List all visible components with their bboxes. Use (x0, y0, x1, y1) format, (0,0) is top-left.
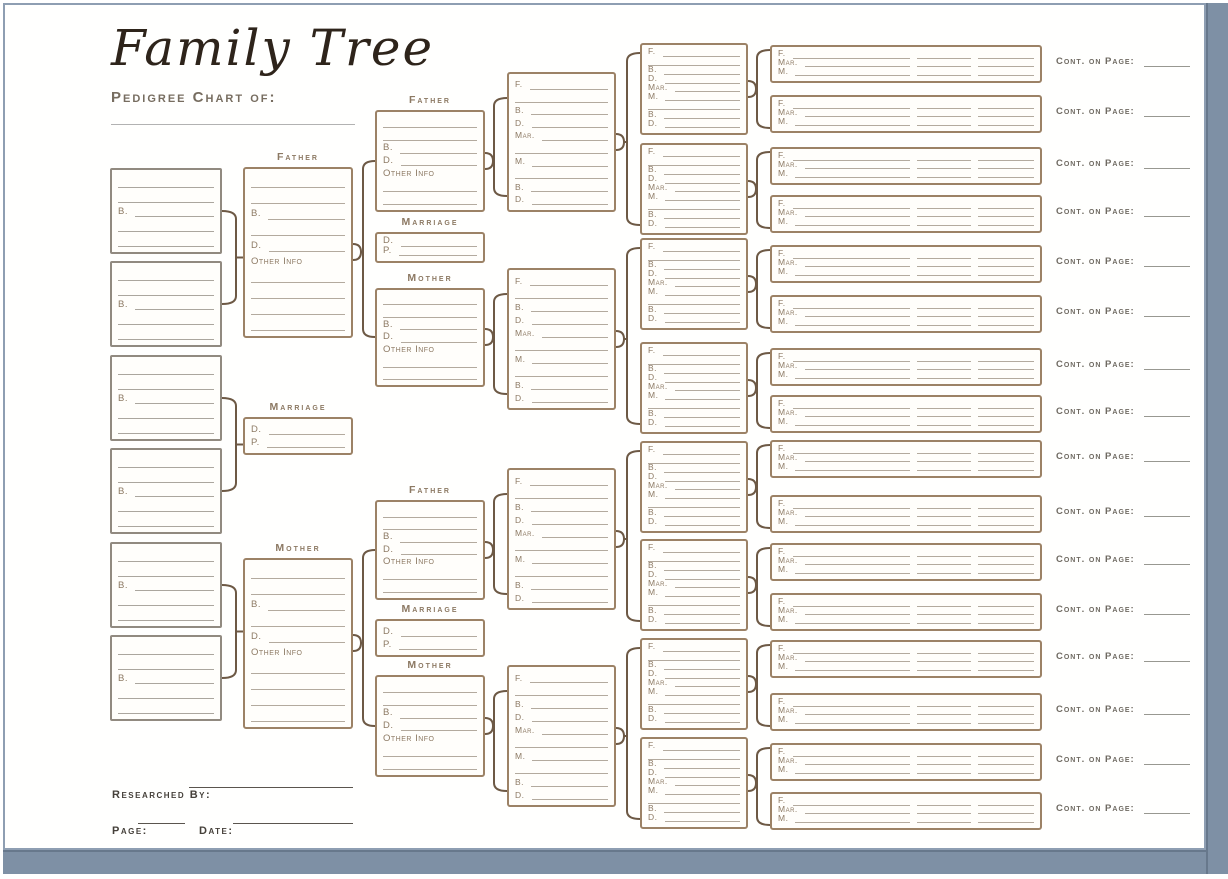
field-input-line[interactable] (793, 748, 910, 757)
field-input-line[interactable] (542, 525, 608, 538)
field-input-line-segment[interactable] (978, 615, 1034, 624)
field-input-line[interactable] (795, 662, 910, 671)
field-input-line[interactable] (793, 445, 910, 454)
field-input-line[interactable] (805, 109, 910, 118)
field-input-line-segment[interactable] (917, 445, 971, 454)
field-input-line[interactable] (251, 579, 345, 595)
field-input-line-segment[interactable] (978, 715, 1034, 724)
field-input-line[interactable] (793, 250, 910, 259)
field-input-line[interactable] (793, 797, 910, 806)
field-input-line[interactable] (118, 512, 214, 527)
field-input-line-segment[interactable] (978, 517, 1034, 526)
field-input-line[interactable] (805, 409, 910, 418)
field-input-line[interactable] (532, 154, 608, 167)
cont-on-page-input-line[interactable] (1144, 453, 1190, 462)
field-input-line[interactable] (383, 568, 477, 581)
field-input-line[interactable] (400, 706, 477, 719)
field-input-line[interactable] (383, 680, 477, 693)
field-input-line[interactable] (663, 243, 740, 252)
field-input-line-segment[interactable] (978, 370, 1034, 379)
cont-on-page-input-line[interactable] (1144, 756, 1190, 765)
field-input-line[interactable] (118, 325, 214, 340)
field-input-line[interactable] (665, 813, 741, 822)
field-input-line[interactable] (665, 670, 741, 679)
field-input-line-segment[interactable] (917, 50, 971, 59)
cont-on-page-input-line[interactable] (1144, 361, 1190, 370)
field-input-line[interactable] (648, 751, 740, 760)
field-input-line[interactable] (805, 59, 910, 68)
field-input-line-segment[interactable] (978, 59, 1034, 68)
field-input-line[interactable] (269, 422, 346, 435)
field-input-line[interactable] (118, 699, 214, 714)
field-input-line-segment[interactable] (917, 797, 971, 806)
field-input-line[interactable] (665, 588, 740, 597)
field-input-line[interactable] (664, 508, 740, 517)
field-input-line[interactable] (135, 203, 214, 218)
field-input-line-segment[interactable] (978, 748, 1034, 757)
field-input-line-segment[interactable] (917, 317, 971, 326)
field-input-line[interactable] (118, 217, 214, 232)
field-input-line-segment[interactable] (917, 814, 971, 823)
field-input-line[interactable] (531, 774, 608, 787)
field-input-line-segment[interactable] (917, 557, 971, 566)
field-input-line-segment[interactable] (917, 715, 971, 724)
field-input-line-segment[interactable] (917, 250, 971, 259)
field-input-line[interactable] (648, 795, 740, 804)
field-input-line-segment[interactable] (978, 117, 1034, 126)
field-input-line-segment[interactable] (978, 814, 1034, 823)
field-input-line[interactable] (665, 473, 741, 482)
field-input-line-segment[interactable] (917, 565, 971, 574)
field-input-line[interactable] (664, 66, 740, 75)
field-input-line[interactable] (664, 464, 740, 473)
field-input-line[interactable] (805, 806, 910, 815)
field-input-line[interactable] (795, 517, 910, 526)
field-input-line[interactable] (118, 281, 214, 296)
field-input-line[interactable] (664, 804, 740, 813)
field-input-line[interactable] (399, 247, 477, 257)
field-input-line[interactable] (532, 390, 609, 403)
field-input-line-segment[interactable] (978, 598, 1034, 607)
field-input-line-segment[interactable] (978, 548, 1034, 557)
field-input-line[interactable] (532, 590, 609, 603)
field-input-line-segment[interactable] (917, 259, 971, 268)
field-input-line[interactable] (664, 661, 740, 670)
field-input-line[interactable] (515, 683, 608, 696)
field-input-line[interactable] (648, 597, 740, 606)
field-input-line[interactable] (665, 192, 740, 201)
field-input-line[interactable] (118, 606, 214, 621)
field-input-line[interactable] (648, 201, 740, 210)
field-input-line-segment[interactable] (917, 109, 971, 118)
field-input-line-segment[interactable] (917, 370, 971, 379)
field-input-line[interactable] (532, 512, 609, 525)
field-input-line[interactable] (648, 101, 740, 110)
field-input-line[interactable] (795, 565, 910, 574)
field-input-line[interactable] (805, 309, 910, 318)
field-input-line[interactable] (531, 499, 608, 512)
field-input-line-segment[interactable] (917, 209, 971, 218)
field-input-line[interactable] (648, 553, 740, 562)
field-input-line-segment[interactable] (978, 645, 1034, 654)
field-input-line[interactable] (795, 370, 910, 379)
field-input-line[interactable] (251, 267, 345, 283)
field-input-line[interactable] (663, 446, 740, 455)
field-input-line[interactable] (135, 483, 214, 498)
field-input-line[interactable] (515, 735, 608, 748)
field-input-line[interactable] (805, 509, 910, 518)
field-input-line[interactable] (542, 128, 608, 141)
field-input-line[interactable] (515, 538, 608, 551)
field-input-line[interactable] (135, 296, 214, 311)
field-input-line-segment[interactable] (978, 797, 1034, 806)
field-input-line[interactable] (805, 607, 910, 616)
field-input-line[interactable] (251, 172, 345, 188)
field-input-line[interactable] (383, 355, 477, 367)
field-input-line[interactable] (542, 722, 608, 735)
field-input-line-segment[interactable] (978, 161, 1034, 170)
field-input-line[interactable] (383, 368, 477, 380)
field-input-line-segment[interactable] (917, 67, 971, 76)
field-input-line[interactable] (648, 157, 740, 166)
field-input-line-segment[interactable] (917, 748, 971, 757)
field-input-line-segment[interactable] (978, 362, 1034, 371)
field-input-line-segment[interactable] (917, 100, 971, 109)
field-input-line[interactable] (648, 57, 740, 66)
cont-on-page-input-line[interactable] (1144, 208, 1190, 217)
field-input-line[interactable] (532, 351, 608, 364)
field-input-line[interactable] (793, 152, 910, 161)
field-input-line-segment[interactable] (917, 707, 971, 716)
field-input-line[interactable] (664, 110, 740, 119)
field-input-line[interactable] (675, 482, 740, 491)
field-input-line[interactable] (665, 687, 740, 696)
field-input-line[interactable] (805, 557, 910, 566)
cont-on-page-input-line[interactable] (1144, 58, 1190, 67)
field-input-line[interactable] (118, 404, 214, 419)
field-input-line[interactable] (118, 453, 214, 468)
field-input-line[interactable] (118, 547, 214, 562)
field-input-line[interactable] (383, 518, 477, 531)
field-input-line-segment[interactable] (978, 462, 1034, 471)
field-input-line[interactable] (793, 400, 910, 409)
field-input-line[interactable] (664, 705, 740, 714)
field-input-line[interactable] (118, 684, 214, 699)
field-input-line-segment[interactable] (978, 454, 1034, 463)
field-input-line[interactable] (118, 562, 214, 577)
field-input-line-segment[interactable] (917, 757, 971, 766)
field-input-line-segment[interactable] (917, 598, 971, 607)
field-input-line[interactable] (268, 204, 345, 220)
field-input-line[interactable] (793, 353, 910, 362)
field-input-line[interactable] (665, 287, 740, 296)
date-input-line[interactable] (233, 823, 353, 824)
field-input-line[interactable] (532, 312, 609, 325)
field-input-line[interactable] (251, 706, 345, 722)
field-input-line-segment[interactable] (917, 509, 971, 518)
field-input-line[interactable] (795, 117, 910, 126)
field-input-line[interactable] (118, 310, 214, 325)
field-input-line[interactable] (268, 595, 345, 611)
field-input-line[interactable] (400, 318, 477, 330)
field-input-line[interactable] (383, 128, 477, 141)
field-input-line-segment[interactable] (917, 462, 971, 471)
field-input-line[interactable] (400, 530, 477, 543)
field-input-line[interactable] (665, 714, 741, 723)
field-input-line[interactable] (251, 220, 345, 236)
field-input-line-segment[interactable] (917, 615, 971, 624)
field-input-line[interactable] (665, 175, 741, 184)
field-input-line[interactable] (648, 356, 740, 365)
field-input-line[interactable] (665, 92, 740, 101)
field-input-line[interactable] (795, 169, 910, 178)
field-input-line[interactable] (400, 141, 477, 154)
field-input-line-segment[interactable] (917, 662, 971, 671)
cont-on-page-input-line[interactable] (1144, 606, 1190, 615)
field-input-line[interactable] (664, 166, 740, 175)
field-input-line-segment[interactable] (978, 765, 1034, 774)
field-input-line[interactable] (795, 462, 910, 471)
field-input-line[interactable] (251, 315, 345, 331)
field-input-line[interactable] (118, 232, 214, 247)
field-input-line[interactable] (675, 84, 740, 93)
field-input-line[interactable] (664, 562, 740, 571)
field-input-line-segment[interactable] (917, 59, 971, 68)
cont-on-page-input-line[interactable] (1144, 308, 1190, 317)
field-input-line[interactable] (663, 544, 740, 553)
field-input-line-segment[interactable] (917, 698, 971, 707)
field-input-line-segment[interactable] (978, 806, 1034, 815)
field-input-line[interactable] (531, 696, 608, 709)
field-input-line[interactable] (531, 377, 608, 390)
field-input-line[interactable] (665, 219, 741, 228)
field-input-line-segment[interactable] (978, 250, 1034, 259)
field-input-line[interactable] (665, 374, 741, 383)
field-input-line-segment[interactable] (917, 400, 971, 409)
field-input-line[interactable] (401, 543, 478, 556)
field-input-line-segment[interactable] (917, 417, 971, 426)
field-input-line-segment[interactable] (917, 362, 971, 371)
field-input-line[interactable] (805, 757, 910, 766)
page-input-line[interactable] (138, 823, 185, 824)
field-input-line-segment[interactable] (978, 698, 1034, 707)
field-input-line[interactable] (805, 259, 910, 268)
field-input-line[interactable] (251, 563, 345, 579)
field-input-line[interactable] (135, 670, 214, 685)
field-input-line[interactable] (401, 237, 478, 247)
field-input-line-segment[interactable] (978, 217, 1034, 226)
field-input-line[interactable] (118, 591, 214, 606)
field-input-line-segment[interactable] (978, 259, 1034, 268)
field-input-line-segment[interactable] (978, 267, 1034, 276)
field-input-line-segment[interactable] (978, 209, 1034, 218)
field-input-line[interactable] (118, 497, 214, 512)
field-input-line-segment[interactable] (978, 417, 1034, 426)
field-input-line[interactable] (515, 286, 608, 299)
field-input-line[interactable] (805, 707, 910, 716)
field-input-line[interactable] (664, 305, 740, 314)
field-input-line[interactable] (515, 364, 608, 377)
cont-on-page-input-line[interactable] (1144, 805, 1190, 814)
field-input-line-segment[interactable] (917, 645, 971, 654)
field-input-line[interactable] (664, 409, 740, 418)
field-input-line[interactable] (665, 615, 741, 624)
field-input-line[interactable] (793, 500, 910, 509)
cont-on-page-input-line[interactable] (1144, 706, 1190, 715)
field-input-line[interactable] (532, 787, 609, 800)
field-input-line[interactable] (542, 325, 608, 338)
field-input-line[interactable] (251, 611, 345, 627)
field-input-line[interactable] (531, 577, 608, 590)
field-input-line[interactable] (515, 338, 608, 351)
field-input-line[interactable] (267, 435, 345, 448)
field-input-line-segment[interactable] (917, 517, 971, 526)
field-input-line[interactable] (805, 362, 910, 371)
field-input-line-segment[interactable] (917, 454, 971, 463)
field-input-line-segment[interactable] (917, 353, 971, 362)
field-input-line[interactable] (251, 283, 345, 299)
field-input-line[interactable] (665, 517, 741, 526)
field-input-line[interactable] (383, 744, 477, 757)
field-input-line[interactable] (793, 200, 910, 209)
field-input-line[interactable] (648, 296, 740, 305)
field-input-line-segment[interactable] (917, 161, 971, 170)
field-input-line[interactable] (793, 698, 910, 707)
field-input-line[interactable] (795, 765, 910, 774)
field-input-line-segment[interactable] (917, 500, 971, 509)
field-input-line[interactable] (383, 580, 477, 593)
field-input-line[interactable] (663, 742, 740, 751)
field-input-line[interactable] (665, 490, 740, 499)
field-input-line-segment[interactable] (978, 169, 1034, 178)
field-input-line-segment[interactable] (917, 217, 971, 226)
field-input-line[interactable] (795, 217, 910, 226)
field-input-line[interactable] (664, 365, 740, 374)
field-input-line[interactable] (805, 161, 910, 170)
field-input-line[interactable] (118, 640, 214, 655)
field-input-line-segment[interactable] (917, 200, 971, 209)
field-input-line[interactable] (795, 615, 910, 624)
field-input-line[interactable] (663, 148, 740, 157)
field-input-line[interactable] (118, 419, 214, 434)
chart-name-input-line[interactable] (111, 109, 355, 125)
field-input-line[interactable] (383, 505, 477, 518)
field-input-line-segment[interactable] (978, 67, 1034, 76)
field-input-line[interactable] (118, 375, 214, 390)
field-input-line[interactable] (532, 551, 608, 564)
field-input-line[interactable] (118, 468, 214, 483)
field-input-line[interactable] (664, 261, 740, 270)
field-input-line[interactable] (675, 679, 740, 688)
cont-on-page-input-line[interactable] (1144, 653, 1190, 662)
field-input-line[interactable] (665, 571, 741, 580)
field-input-line[interactable] (530, 273, 608, 286)
field-input-line[interactable] (251, 658, 345, 674)
field-input-line[interactable] (793, 645, 910, 654)
field-input-line-segment[interactable] (917, 765, 971, 774)
field-input-line[interactable] (532, 709, 609, 722)
field-input-line-segment[interactable] (978, 500, 1034, 509)
field-input-line[interactable] (793, 300, 910, 309)
field-input-line[interactable] (532, 748, 608, 761)
field-input-line[interactable] (118, 266, 214, 281)
field-input-line-segment[interactable] (978, 100, 1034, 109)
field-input-line[interactable] (383, 179, 477, 192)
field-input-line-segment[interactable] (917, 169, 971, 178)
field-input-line[interactable] (663, 48, 740, 57)
field-input-line[interactable] (401, 719, 478, 732)
field-input-line[interactable] (795, 267, 910, 276)
field-input-line[interactable] (531, 299, 608, 312)
field-input-line[interactable] (383, 305, 477, 317)
field-input-line[interactable] (118, 360, 214, 375)
field-input-line[interactable] (530, 670, 608, 683)
field-input-line[interactable] (515, 90, 608, 103)
field-input-line-segment[interactable] (978, 50, 1034, 59)
field-input-line[interactable] (665, 418, 741, 427)
field-input-line[interactable] (665, 75, 741, 84)
field-input-line-segment[interactable] (917, 309, 971, 318)
field-input-line-segment[interactable] (978, 400, 1034, 409)
field-input-line[interactable] (793, 598, 910, 607)
cont-on-page-input-line[interactable] (1144, 108, 1190, 117)
cont-on-page-input-line[interactable] (1144, 258, 1190, 267)
field-input-line[interactable] (399, 637, 477, 650)
field-input-line-segment[interactable] (978, 317, 1034, 326)
field-input-line[interactable] (663, 347, 740, 356)
field-input-line[interactable] (515, 167, 608, 180)
field-input-line[interactable] (251, 188, 345, 204)
field-input-line-segment[interactable] (917, 409, 971, 418)
field-input-line[interactable] (648, 652, 740, 661)
field-input-line[interactable] (793, 100, 910, 109)
field-input-line-segment[interactable] (978, 200, 1034, 209)
field-input-line[interactable] (795, 417, 910, 426)
field-input-line[interactable] (135, 390, 214, 405)
cont-on-page-input-line[interactable] (1144, 408, 1190, 417)
field-input-line[interactable] (530, 77, 608, 90)
field-input-line[interactable] (795, 67, 910, 76)
field-input-line-segment[interactable] (978, 654, 1034, 663)
field-input-line-segment[interactable] (978, 353, 1034, 362)
field-input-line-segment[interactable] (917, 152, 971, 161)
field-input-line[interactable] (118, 173, 214, 188)
field-input-line[interactable] (383, 293, 477, 305)
field-input-line-segment[interactable] (917, 806, 971, 815)
field-input-line[interactable] (383, 693, 477, 706)
field-input-line-segment[interactable] (978, 152, 1034, 161)
cont-on-page-input-line[interactable] (1144, 508, 1190, 517)
field-input-line[interactable] (532, 192, 609, 205)
field-input-line[interactable] (401, 330, 478, 342)
field-input-line[interactable] (664, 760, 740, 769)
field-input-line-segment[interactable] (978, 707, 1034, 716)
field-input-line[interactable] (515, 486, 608, 499)
field-input-line[interactable] (531, 179, 608, 192)
field-input-line-segment[interactable] (978, 109, 1034, 118)
field-input-line[interactable] (532, 115, 609, 128)
field-input-line[interactable] (401, 624, 478, 637)
field-input-line[interactable] (251, 299, 345, 315)
field-input-line[interactable] (675, 383, 740, 392)
field-input-line[interactable] (648, 696, 740, 705)
field-input-line[interactable] (269, 627, 346, 643)
field-input-line[interactable] (665, 314, 741, 323)
field-input-line-segment[interactable] (917, 267, 971, 276)
field-input-line[interactable] (531, 103, 608, 116)
field-input-line[interactable] (664, 606, 740, 615)
field-input-line[interactable] (795, 715, 910, 724)
